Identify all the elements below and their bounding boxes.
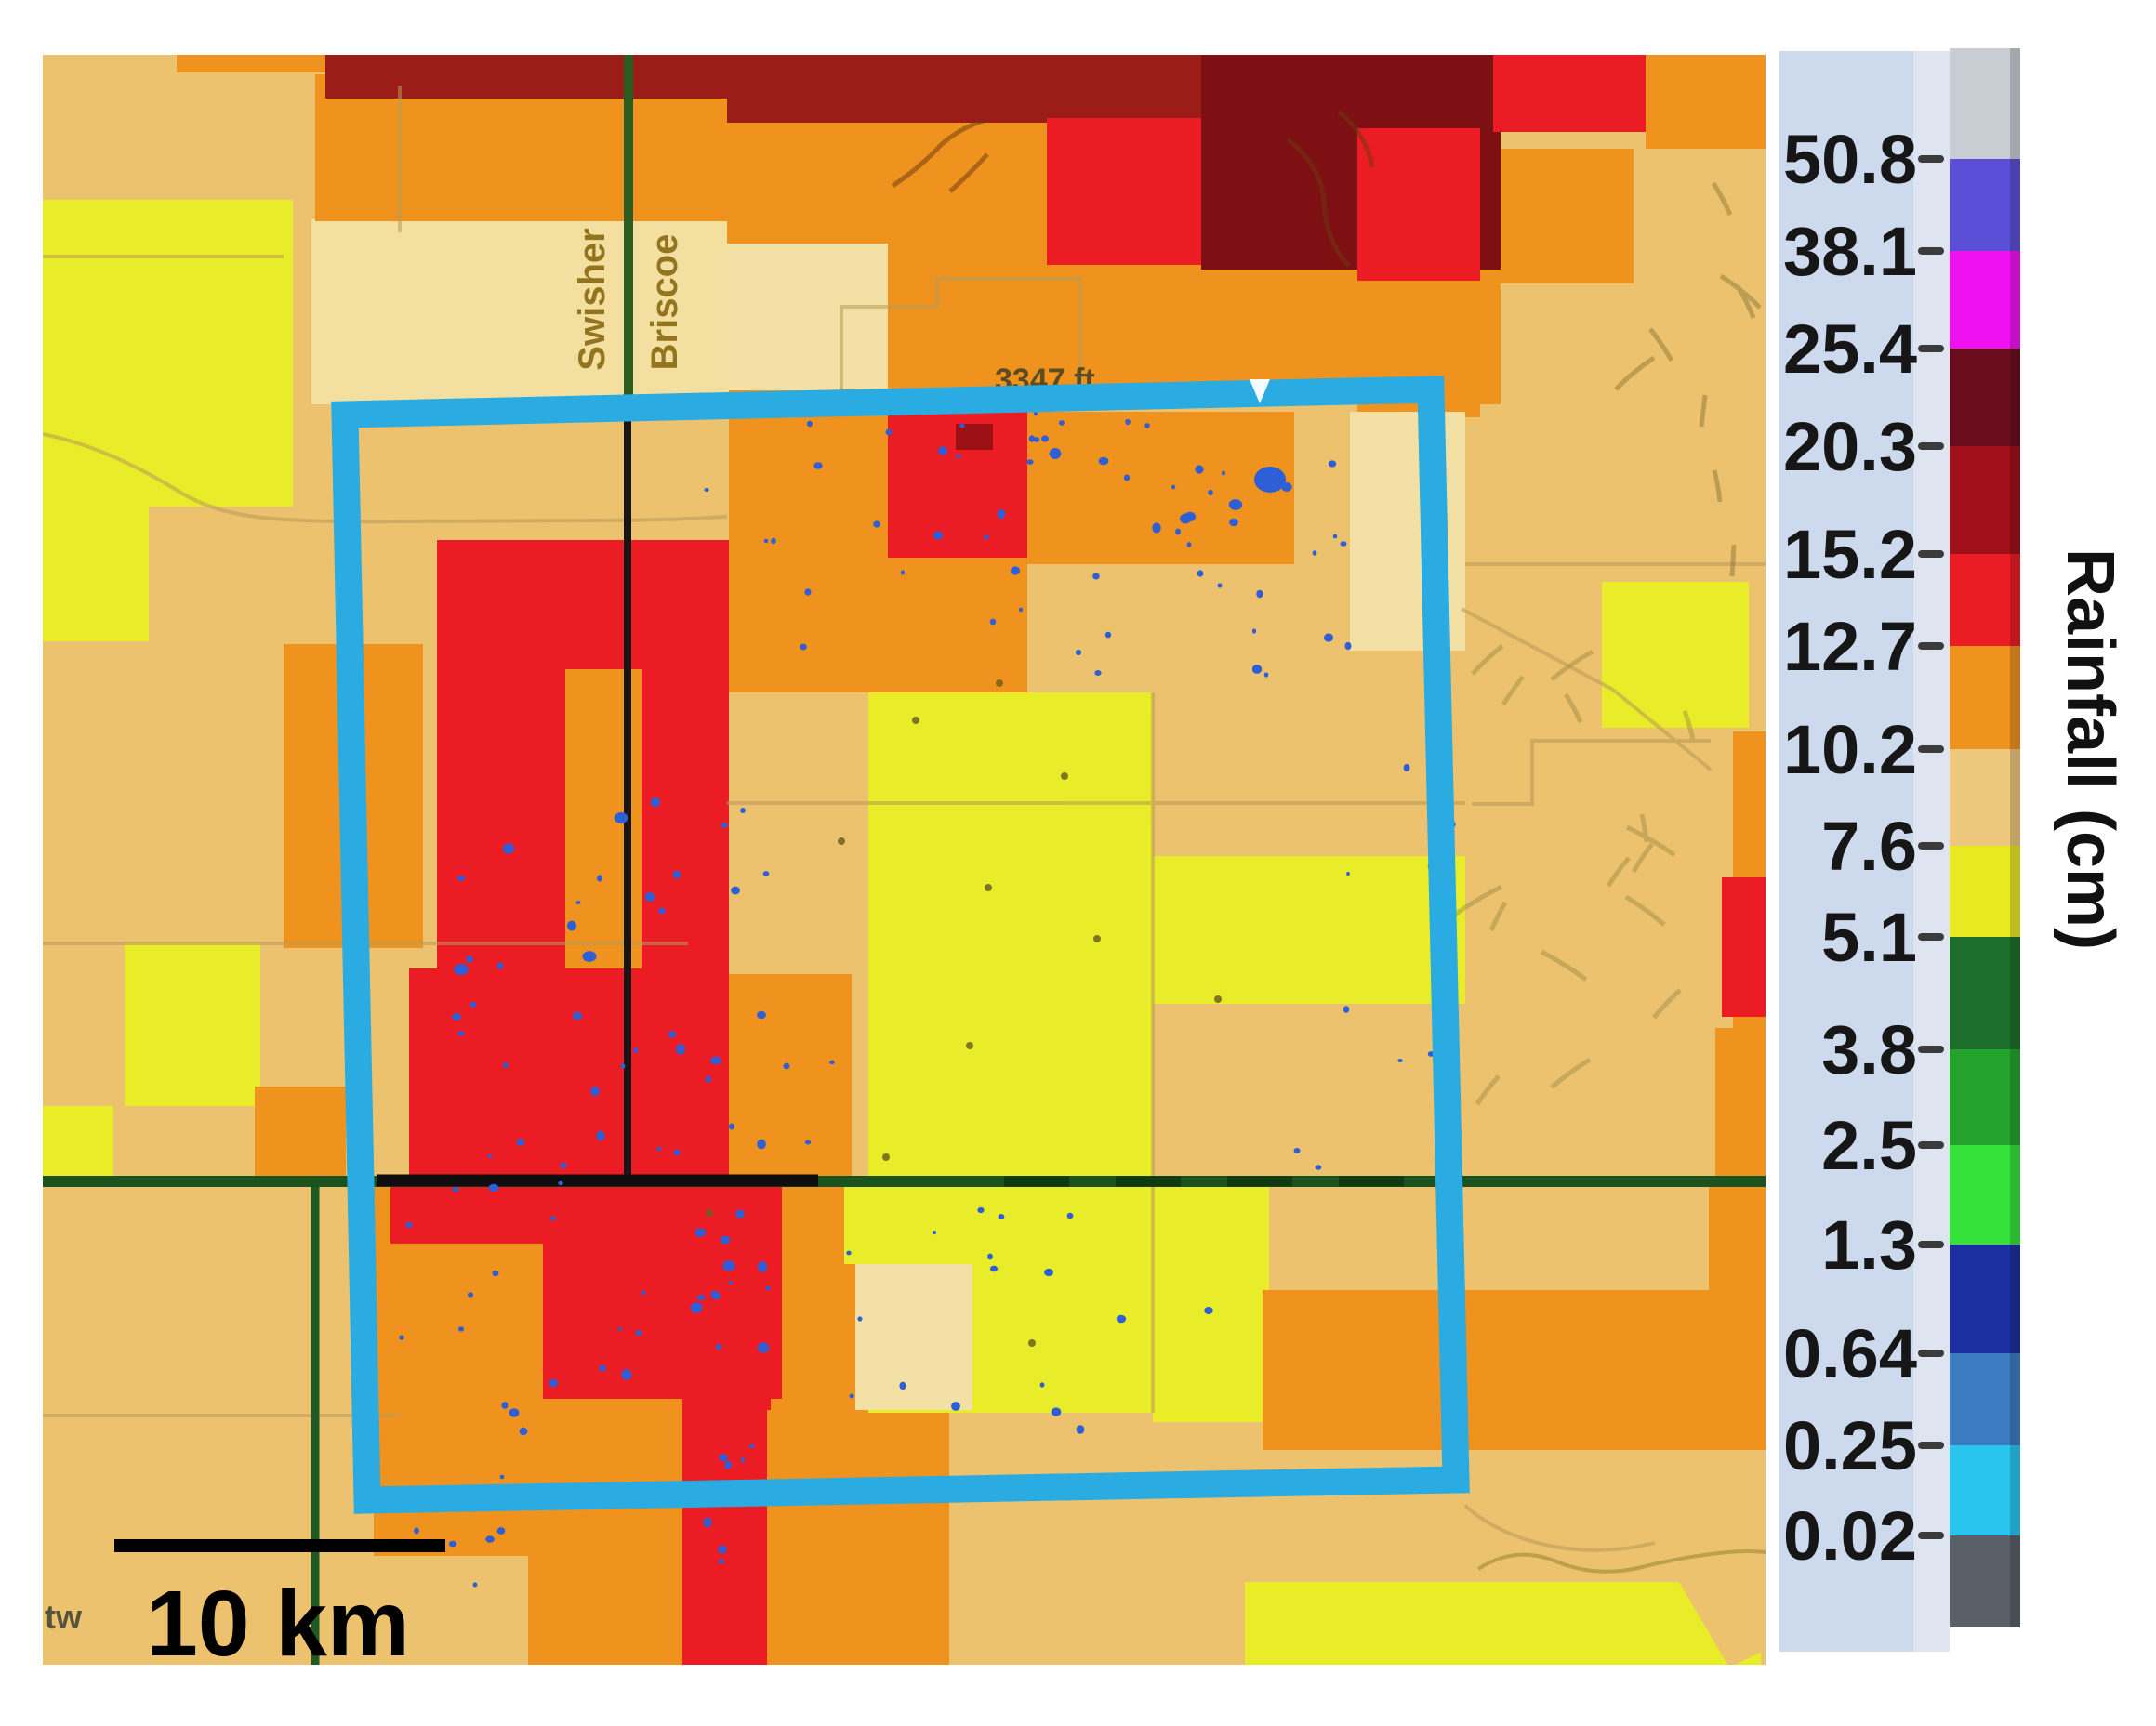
svg-text:50.8: 50.8 [1783,121,1917,198]
svg-text:Rainfall (cm): Rainfall (cm) [2053,548,2127,950]
svg-text:20.3: 20.3 [1783,408,1917,485]
svg-text:12.7: 12.7 [1783,608,1917,685]
svg-text:0.02: 0.02 [1783,1497,1917,1574]
svg-text:25.4: 25.4 [1783,310,1917,388]
svg-text:15.2: 15.2 [1783,516,1917,593]
svg-text:7.6: 7.6 [1821,808,1917,885]
svg-text:3.8: 3.8 [1821,1011,1917,1088]
svg-text:0.64: 0.64 [1783,1315,1917,1392]
svg-text:10 km: 10 km [146,1572,410,1676]
svg-text:Briscoe: Briscoe [644,234,685,371]
svg-text:2.5: 2.5 [1821,1107,1917,1184]
svg-text:38.1: 38.1 [1783,213,1917,290]
svg-text:Swisher: Swisher [572,228,613,370]
svg-text:0.25: 0.25 [1783,1407,1917,1484]
svg-text:10.2: 10.2 [1783,711,1917,788]
svg-text:1.3: 1.3 [1821,1206,1917,1284]
svg-text:5.1: 5.1 [1821,899,1917,976]
svg-text:tw: tw [45,1598,83,1636]
